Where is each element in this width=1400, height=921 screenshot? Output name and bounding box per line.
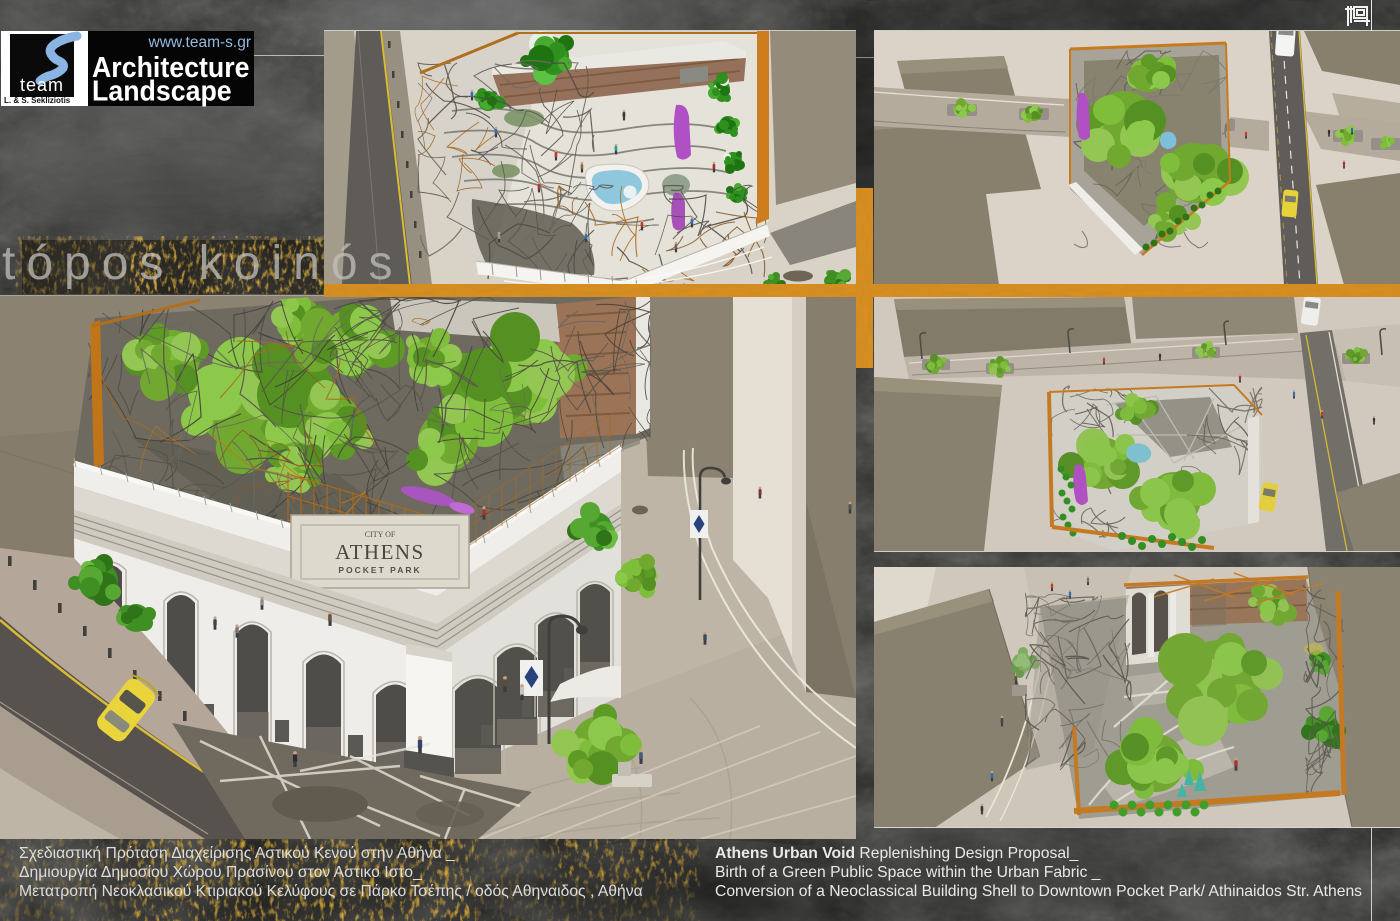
- svg-text:ATHENS: ATHENS: [335, 540, 425, 564]
- svg-text:CITY OF: CITY OF: [365, 530, 396, 539]
- svg-text:POCKET PARK: POCKET PARK: [338, 565, 421, 575]
- svg-text:team: team: [20, 75, 64, 95]
